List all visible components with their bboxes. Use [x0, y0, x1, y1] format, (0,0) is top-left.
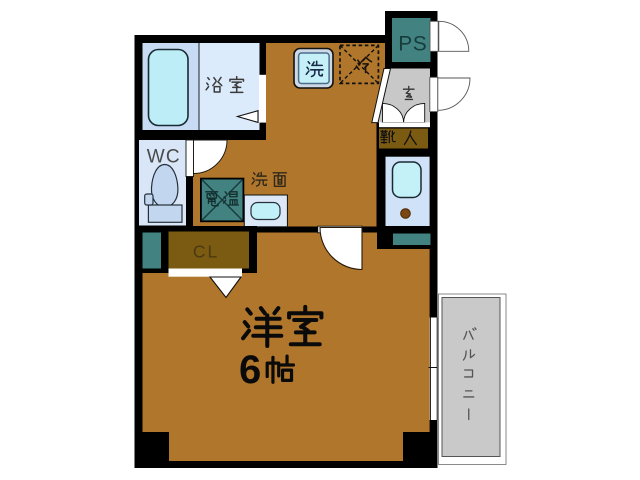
svg-text:CL: CL [193, 241, 219, 261]
svg-text:PS: PS [398, 33, 427, 56]
svg-text:6: 6 [239, 348, 261, 392]
